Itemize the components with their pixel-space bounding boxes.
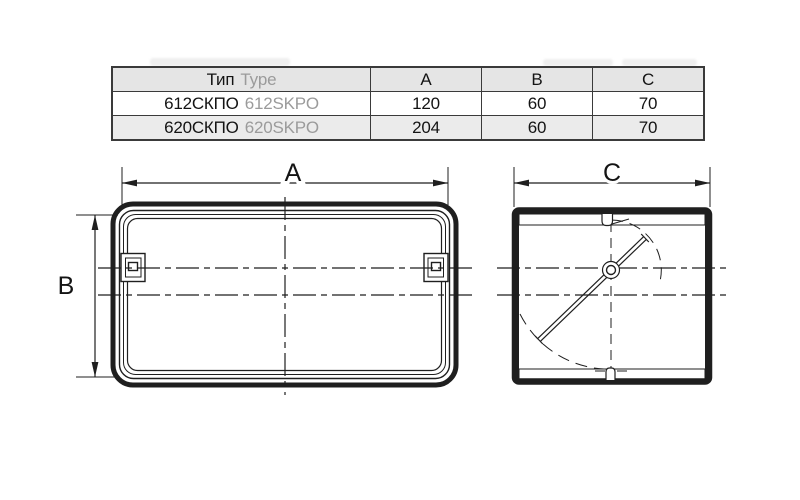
arrow-down-icon — [92, 362, 99, 377]
dimension-b: B — [58, 215, 118, 377]
arrow-left-icon — [122, 180, 137, 187]
technical-drawing-page: ТипType A B C 612СКПО612SKPO 120 60 70 6… — [0, 0, 800, 500]
blade-edge — [538, 237, 644, 339]
dim-a-label: A — [285, 159, 302, 187]
dim-c-label: C — [603, 159, 621, 187]
stop-tab — [602, 214, 613, 226]
stop-tab — [606, 368, 615, 380]
side-view: C — [497, 159, 727, 382]
dimension-c: C — [514, 159, 710, 207]
arrow-right-icon — [695, 180, 710, 187]
front-view: A B — [58, 159, 477, 395]
blade-edge — [540, 239, 646, 341]
clip-slot — [129, 263, 138, 271]
duct-body-inner-wall — [519, 214, 706, 380]
duct-connector-drawing: A B — [0, 0, 800, 500]
blade-swing-arc-lower — [520, 314, 604, 369]
arrow-left-icon — [514, 180, 529, 187]
damper-pivot — [603, 262, 620, 279]
arrow-up-icon — [92, 215, 99, 230]
dim-b-label: B — [58, 272, 75, 300]
duct-body-outline — [515, 211, 709, 382]
pivot-axle-circle — [607, 266, 616, 275]
blade-stop-bottom — [595, 368, 627, 380]
damper-blade — [535, 234, 649, 344]
clip-slot — [432, 263, 441, 271]
arrow-right-icon — [433, 180, 448, 187]
blade-swing-arc-upper — [611, 220, 661, 285]
